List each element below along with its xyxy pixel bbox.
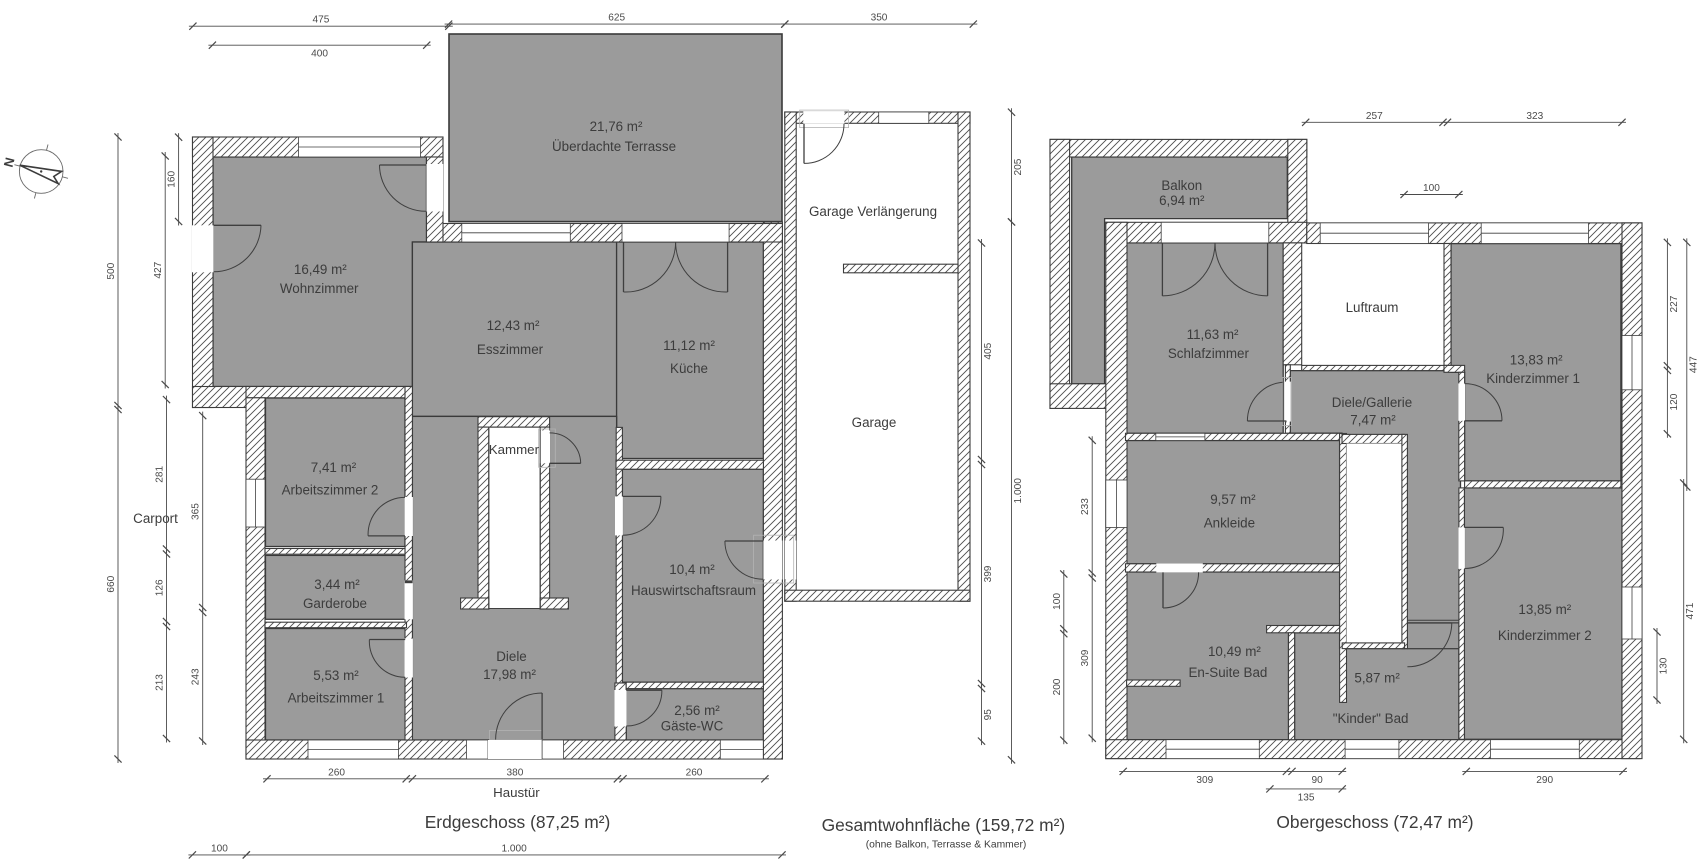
svg-text:17,98 m²: 17,98 m² bbox=[483, 667, 536, 682]
svg-text:Gäste-WC: Gäste-WC bbox=[661, 718, 724, 733]
svg-text:399: 399 bbox=[983, 565, 994, 582]
svg-text:(ohne Balkon, Terrasse & Kamme: (ohne Balkon, Terrasse & Kammer) bbox=[866, 840, 1027, 851]
svg-text:Diele/Gallerie: Diele/Gallerie bbox=[1332, 395, 1412, 410]
svg-text:Haustür: Haustür bbox=[493, 785, 540, 800]
svg-text:500: 500 bbox=[106, 262, 117, 279]
svg-text:323: 323 bbox=[1526, 111, 1543, 122]
svg-text:405: 405 bbox=[983, 342, 994, 359]
svg-text:213: 213 bbox=[155, 674, 166, 691]
svg-text:290: 290 bbox=[1536, 775, 1553, 786]
svg-text:Luftraum: Luftraum bbox=[1346, 300, 1399, 315]
svg-text:11,63 m²: 11,63 m² bbox=[1187, 327, 1239, 342]
svg-text:Obergeschoss (72,47 m²): Obergeschoss (72,47 m²) bbox=[1276, 812, 1473, 832]
svg-text:1.000: 1.000 bbox=[501, 843, 527, 854]
svg-text:Wohnzimmer: Wohnzimmer bbox=[280, 281, 359, 296]
svg-text:5,87 m²: 5,87 m² bbox=[1354, 671, 1400, 686]
svg-text:100: 100 bbox=[211, 843, 228, 854]
svg-text:Gesamtwohnfläche (159,72 m²): Gesamtwohnfläche (159,72 m²) bbox=[822, 815, 1066, 835]
svg-text:260: 260 bbox=[328, 767, 345, 778]
svg-text:160: 160 bbox=[167, 170, 178, 187]
svg-text:90: 90 bbox=[1311, 775, 1323, 786]
svg-text:21,76 m²: 21,76 m² bbox=[590, 119, 643, 134]
svg-text:Überdachte Terrasse: Überdachte Terrasse bbox=[552, 139, 676, 154]
svg-text:11,12 m²: 11,12 m² bbox=[663, 338, 715, 353]
svg-text:13,85 m²: 13,85 m² bbox=[1518, 602, 1571, 617]
svg-text:10,4 m²: 10,4 m² bbox=[669, 562, 715, 577]
svg-text:Kinderzimmer 2: Kinderzimmer 2 bbox=[1498, 628, 1592, 643]
svg-text:Esszimmer: Esszimmer bbox=[477, 342, 544, 357]
svg-text:135: 135 bbox=[1298, 792, 1315, 803]
svg-text:2,56 m²: 2,56 m² bbox=[674, 703, 720, 718]
svg-text:Garage: Garage bbox=[852, 415, 897, 430]
svg-text:Kinderzimmer 1: Kinderzimmer 1 bbox=[1486, 371, 1580, 386]
svg-text:126: 126 bbox=[155, 579, 166, 596]
svg-text:475: 475 bbox=[312, 15, 329, 26]
svg-text:350: 350 bbox=[871, 13, 888, 24]
svg-text:100: 100 bbox=[1052, 593, 1063, 610]
svg-text:Kammer: Kammer bbox=[489, 442, 540, 457]
svg-text:Garage Verlängerung: Garage Verlängerung bbox=[809, 204, 937, 219]
svg-text:471: 471 bbox=[1685, 602, 1696, 619]
svg-text:281: 281 bbox=[155, 465, 166, 482]
svg-text:233: 233 bbox=[1080, 498, 1091, 515]
svg-text:Carport: Carport bbox=[133, 511, 178, 526]
svg-text:6,94 m²: 6,94 m² bbox=[1159, 193, 1205, 208]
svg-text:Diele: Diele bbox=[496, 649, 527, 664]
svg-text:7,41 m²: 7,41 m² bbox=[311, 460, 357, 475]
svg-text:447: 447 bbox=[1688, 356, 1699, 373]
svg-text:5,53 m²: 5,53 m² bbox=[313, 668, 359, 683]
svg-text:Ankleide: Ankleide bbox=[1204, 516, 1255, 531]
svg-text:365: 365 bbox=[191, 503, 202, 520]
svg-text:Arbeitszimmer 1: Arbeitszimmer 1 bbox=[288, 691, 385, 706]
svg-text:Schlafzimmer: Schlafzimmer bbox=[1168, 346, 1250, 361]
svg-text:16,49 m²: 16,49 m² bbox=[294, 262, 347, 277]
svg-text:En-Suite Bad: En-Suite Bad bbox=[1188, 665, 1267, 680]
svg-text:Küche: Küche bbox=[670, 361, 708, 376]
svg-text:Garderobe: Garderobe bbox=[303, 596, 367, 611]
svg-text:3,44 m²: 3,44 m² bbox=[314, 577, 360, 592]
svg-text:1.000: 1.000 bbox=[1013, 478, 1024, 504]
svg-text:427: 427 bbox=[153, 261, 164, 278]
svg-text:260: 260 bbox=[686, 767, 703, 778]
svg-text:95: 95 bbox=[983, 709, 994, 721]
svg-text:660: 660 bbox=[106, 575, 117, 592]
svg-text:7,47 m²: 7,47 m² bbox=[1350, 413, 1396, 428]
svg-text:200: 200 bbox=[1052, 678, 1063, 695]
svg-text:10,49 m²: 10,49 m² bbox=[1208, 644, 1261, 659]
svg-text:9,57 m²: 9,57 m² bbox=[1210, 492, 1256, 507]
svg-text:120: 120 bbox=[1669, 393, 1680, 410]
svg-text:Hauswirtschaftsraum: Hauswirtschaftsraum bbox=[631, 583, 756, 598]
svg-text:625: 625 bbox=[608, 13, 625, 24]
svg-text:Balkon: Balkon bbox=[1161, 178, 1202, 193]
svg-text:205: 205 bbox=[1013, 158, 1024, 175]
svg-text:Erdgeschoss (87,25 m²): Erdgeschoss (87,25 m²) bbox=[425, 812, 611, 832]
svg-text:400: 400 bbox=[311, 49, 328, 60]
svg-text:100: 100 bbox=[1423, 183, 1440, 194]
svg-text:309: 309 bbox=[1196, 775, 1213, 786]
svg-text:227: 227 bbox=[1669, 295, 1680, 312]
svg-text:130: 130 bbox=[1659, 657, 1670, 674]
svg-text:309: 309 bbox=[1080, 649, 1091, 666]
svg-text:380: 380 bbox=[506, 767, 523, 778]
svg-text:12,43 m²: 12,43 m² bbox=[487, 318, 540, 333]
svg-text:13,83 m²: 13,83 m² bbox=[1510, 352, 1563, 367]
svg-text:243: 243 bbox=[191, 668, 202, 685]
svg-text:257: 257 bbox=[1366, 111, 1383, 122]
svg-text:"Kinder" Bad: "Kinder" Bad bbox=[1333, 711, 1409, 726]
svg-text:Arbeitszimmer 2: Arbeitszimmer 2 bbox=[282, 483, 379, 498]
